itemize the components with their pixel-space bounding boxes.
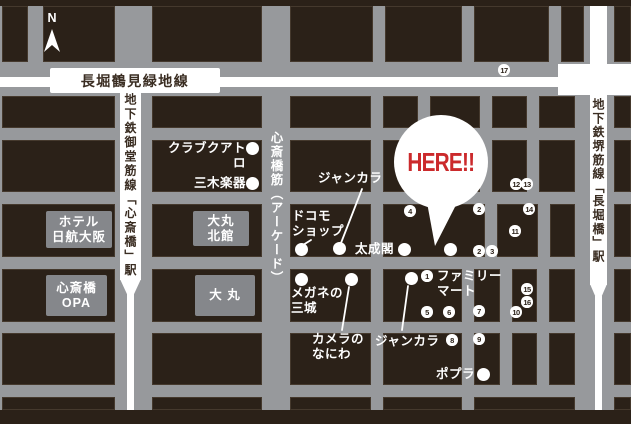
city-block [2,397,115,410]
arcade-street: 心斎橋筋（アーケード） [263,131,289,306]
here-target-dot [444,243,457,256]
city-block [512,333,537,385]
numbered-marker-1: 1 [421,270,433,282]
map-frame-top [0,0,631,6]
poi-label-poplar: ポプラ [436,367,475,382]
numbered-marker-2: 2 [473,203,485,215]
city-block [152,6,262,62]
midosuji-station-label: 地下鉄御堂筋線「心斎橋」駅 [122,93,139,278]
city-block [539,140,575,192]
numbered-marker-3: 3 [486,245,498,257]
poi-dot-taiseikaku [398,243,411,256]
numbered-marker-12: 12 [510,178,522,190]
access-map: 長堀鶴見緑地線 地下鉄御堂筋線「心斎橋」駅 地下鉄堺筋線「長堀橋」駅 心斎橋筋（… [0,0,631,424]
numbered-marker-10: 10 [510,306,522,318]
city-block [2,333,115,385]
numbered-marker-16: 16 [521,296,533,308]
numbered-marker-4: 4 [404,205,416,217]
numbered-marker-5: 5 [421,306,433,318]
city-block [614,140,631,192]
city-block [2,140,115,192]
numbered-marker-13: 13 [521,178,533,190]
numbered-marker-11: 11 [509,225,521,237]
poi-dot-docomo-shop [295,243,308,256]
city-block [474,6,549,62]
city-block [152,333,262,385]
city-block [152,397,262,410]
numbered-marker-9: 9 [473,333,485,345]
city-block [614,269,631,322]
poi-dot-jankara-south [405,272,418,285]
numbered-marker-14: 14 [523,203,535,215]
city-block [549,269,575,322]
city-block [614,333,631,385]
poi-label-megane-no-sanjo: メガネの 三城 [291,286,343,315]
building-shinsaibashi-opa: 心斎橋 OPA [46,275,107,316]
poi-label-docomo-shop: ドコモ ショップ [292,209,344,238]
sakaisuji-line [595,296,602,410]
city-block [383,397,462,410]
poi-label-jankara-south: ジャンカラ [375,334,439,349]
numbered-marker-8: 8 [446,334,458,346]
city-block [614,96,631,128]
poi-label-miki-gakki: 三木楽器 [194,176,246,191]
city-block [614,6,631,62]
sakaisuji-ribbon: 地下鉄堺筋線「長堀橋」駅 [590,2,607,285]
midosuji-line [127,293,134,410]
city-block [492,96,527,128]
midosuji-ribbon: 地下鉄御堂筋線「心斎橋」駅 [120,88,141,280]
poi-label-family-mart: ファミリー マート [437,269,502,298]
city-block [550,204,575,257]
city-block [614,397,631,410]
building-daimaru: 大 丸 [195,275,255,316]
numbered-marker-17: 17 [498,64,510,76]
poi-dot-poplar [477,368,490,381]
numbered-marker-7: 7 [473,305,485,317]
city-block [2,6,28,62]
numbered-marker-15: 15 [521,283,533,295]
numbered-marker-6: 6 [443,306,455,318]
midosuji-ribbon-taper [120,279,141,294]
poi-dot-club-quattro [246,142,259,155]
city-block [290,6,373,62]
city-block [614,204,631,257]
city-block [561,6,584,62]
poi-label-taiseikaku: 太成閣 [355,242,394,257]
city-block [539,96,575,128]
here-label: HERE!! [408,147,475,178]
building-daimaru-north-annex: 大丸 北館 [193,211,249,246]
poi-dot-jankara-north [333,242,346,255]
poi-label-club-quattro: クラブクアトロ [158,141,246,170]
city-block [152,96,262,128]
city-block [290,397,371,410]
arcade-street-label: 心斎橋筋（アーケード） [267,131,286,285]
poi-label-jankara-north: ジャンカラ [318,171,382,186]
poi-dot-megane-no-sanjo [295,273,308,286]
here-balloon: HERE!! [394,115,488,209]
sakaisuji-station-label: 地下鉄堺筋線「長堀橋」駅 [590,98,607,264]
numbered-marker-2: 2 [473,245,485,257]
map-frame-bottom [0,410,631,424]
city-block [385,6,462,62]
city-block [2,96,115,128]
poi-dot-camera-no-naniwa [345,273,358,286]
poi-label-camera-no-naniwa: カメラの なにわ [312,332,364,361]
city-block [549,333,575,385]
city-block [474,397,575,410]
building-hotel-nikko-osaka: ホテル 日航大阪 [46,211,112,248]
poi-dot-miki-gakki [246,177,259,190]
north-compass-label: N [43,11,61,26]
city-block [290,96,371,128]
